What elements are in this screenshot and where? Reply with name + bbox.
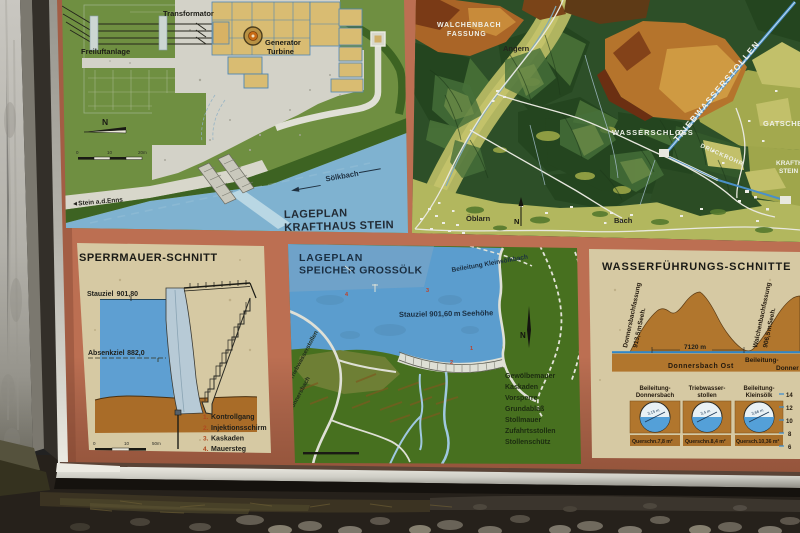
svg-text:Grundablaß: Grundablaß bbox=[505, 406, 545, 413]
svg-text:STEIN: STEIN bbox=[779, 168, 798, 175]
svg-text:N: N bbox=[520, 331, 526, 340]
svg-text:2: 2 bbox=[450, 360, 453, 366]
svg-text:Donnersbach: Donnersbach bbox=[636, 393, 675, 399]
svg-text:14: 14 bbox=[786, 393, 793, 399]
svg-text:LAGEPLAN: LAGEPLAN bbox=[284, 207, 348, 221]
svg-text:7120 m: 7120 m bbox=[684, 344, 706, 351]
svg-text:2.: 2. bbox=[203, 425, 209, 432]
svg-text:Stollmauer: Stollmauer bbox=[505, 417, 541, 424]
svg-text:Generator: Generator bbox=[265, 38, 301, 47]
svg-text:stollen: stollen bbox=[697, 393, 717, 399]
svg-text:Donnersbach Ost: Donnersbach Ost bbox=[668, 363, 734, 370]
svg-text:Kleinsölk: Kleinsölk bbox=[746, 393, 773, 399]
svg-text:Zufahrtsstollen: Zufahrtsstollen bbox=[505, 428, 556, 435]
svg-text:50m: 50m bbox=[152, 441, 161, 446]
svg-text:Turbine: Turbine bbox=[267, 47, 294, 56]
svg-text:N: N bbox=[514, 217, 519, 226]
svg-text:3: 3 bbox=[426, 288, 429, 294]
svg-text:Kaskaden: Kaskaden bbox=[211, 436, 244, 443]
svg-text:Vorsperre: Vorsperre bbox=[505, 395, 538, 402]
svg-text:Angern: Angern bbox=[503, 44, 530, 53]
svg-text:WASSERFÜHRUNGS-SCHNITTE: WASSERFÜHRUNGS-SCHNITTE bbox=[602, 260, 791, 273]
svg-text:3.: 3. bbox=[203, 436, 209, 443]
svg-text:SPERRMAUER-SCHNITT: SPERRMAUER-SCHNITT bbox=[79, 252, 218, 264]
svg-text:Donner: Donner bbox=[776, 365, 799, 372]
svg-text:Querschn.8,4 m²: Querschn.8,4 m² bbox=[685, 439, 726, 445]
svg-text:Kaskaden: Kaskaden bbox=[505, 384, 538, 391]
svg-text:Mauersteg: Mauersteg bbox=[211, 446, 246, 453]
svg-text:Absenkziel 882,0: Absenkziel 882,0 bbox=[88, 350, 145, 357]
svg-text:Beileitung-: Beileitung- bbox=[744, 386, 775, 392]
svg-text:1.: 1. bbox=[203, 414, 209, 421]
svg-text:N: N bbox=[102, 117, 108, 127]
svg-text:Beileitung-: Beileitung- bbox=[640, 386, 671, 392]
svg-text:12: 12 bbox=[786, 406, 793, 412]
svg-text:Stollenschütz: Stollenschütz bbox=[505, 439, 551, 446]
svg-text:Freiluftanlage: Freiluftanlage bbox=[81, 47, 130, 56]
svg-text:WALCHENBACH: WALCHENBACH bbox=[437, 22, 501, 29]
svg-text:LAGEPLAN: LAGEPLAN bbox=[299, 252, 363, 264]
svg-text:Gewölbemauer: Gewölbemauer bbox=[505, 373, 555, 380]
svg-text:10: 10 bbox=[124, 441, 130, 446]
svg-text:10: 10 bbox=[786, 419, 793, 425]
svg-text:Stauziel 901,60 m Seehöhe: Stauziel 901,60 m Seehöhe bbox=[399, 308, 493, 319]
svg-text:Kontrollgang: Kontrollgang bbox=[211, 414, 255, 421]
svg-text:KRAFTH.: KRAFTH. bbox=[776, 160, 800, 167]
svg-text:Querschn.7,8 m²: Querschn.7,8 m² bbox=[632, 439, 673, 445]
svg-text:1: 1 bbox=[470, 346, 473, 352]
svg-text:Öblarn: Öblarn bbox=[466, 214, 491, 223]
svg-text:10: 10 bbox=[107, 150, 113, 155]
svg-text:Beileitung-: Beileitung- bbox=[745, 357, 779, 364]
svg-text:Triebwasser-: Triebwasser- bbox=[689, 386, 726, 392]
svg-text:Injektionsschirm: Injektionsschirm bbox=[211, 425, 267, 432]
svg-text:SPEICHER GROSSÖLK: SPEICHER GROSSÖLK bbox=[299, 264, 423, 277]
svg-text:GATSCHB: GATSCHB bbox=[763, 119, 800, 128]
svg-text:Quersch.10,36 m²: Quersch.10,36 m² bbox=[736, 439, 780, 445]
svg-text:20m: 20m bbox=[138, 150, 147, 155]
svg-text:FASSUNG: FASSUNG bbox=[447, 31, 486, 38]
svg-text:Bach: Bach bbox=[614, 216, 633, 225]
svg-text:WASSERSCHLOSS: WASSERSCHLOSS bbox=[612, 128, 694, 137]
svg-text:Transformator: Transformator bbox=[163, 9, 214, 18]
svg-text:Stauziel 901,80: Stauziel 901,80 bbox=[87, 291, 138, 298]
